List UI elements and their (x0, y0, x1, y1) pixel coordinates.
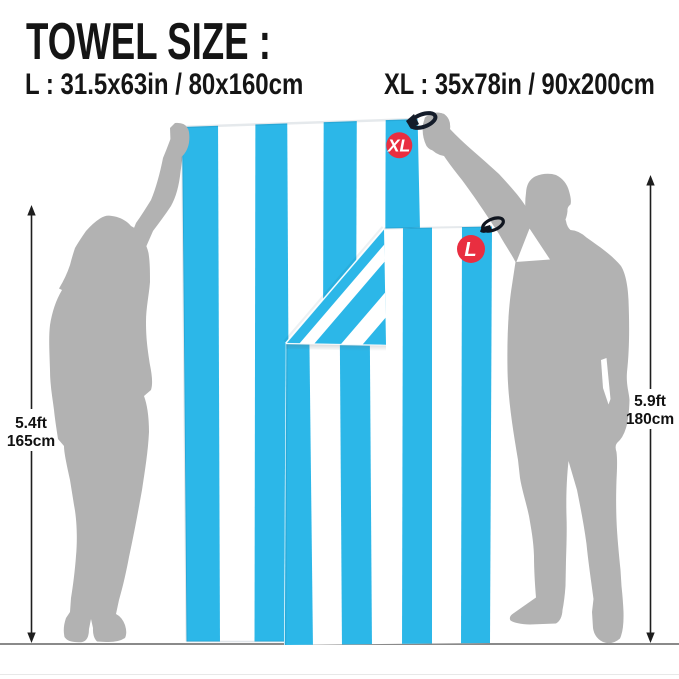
svg-text:L: L (464, 239, 476, 261)
svg-text:L : 31.5x63in / 80x160cm: L : 31.5x63in / 80x160cm (25, 66, 303, 100)
svg-text:XL: XL (387, 136, 410, 156)
svg-text:165cm: 165cm (7, 433, 55, 450)
svg-text:XL : 35x78in / 90x200cm: XL : 35x78in / 90x200cm (384, 67, 655, 100)
svg-text:5.4ft: 5.4ft (15, 415, 47, 432)
svg-text:TOWEL SIZE :: TOWEL SIZE : (26, 11, 271, 70)
svg-text:5.9ft: 5.9ft (634, 393, 666, 410)
svg-text:180cm: 180cm (626, 411, 674, 428)
